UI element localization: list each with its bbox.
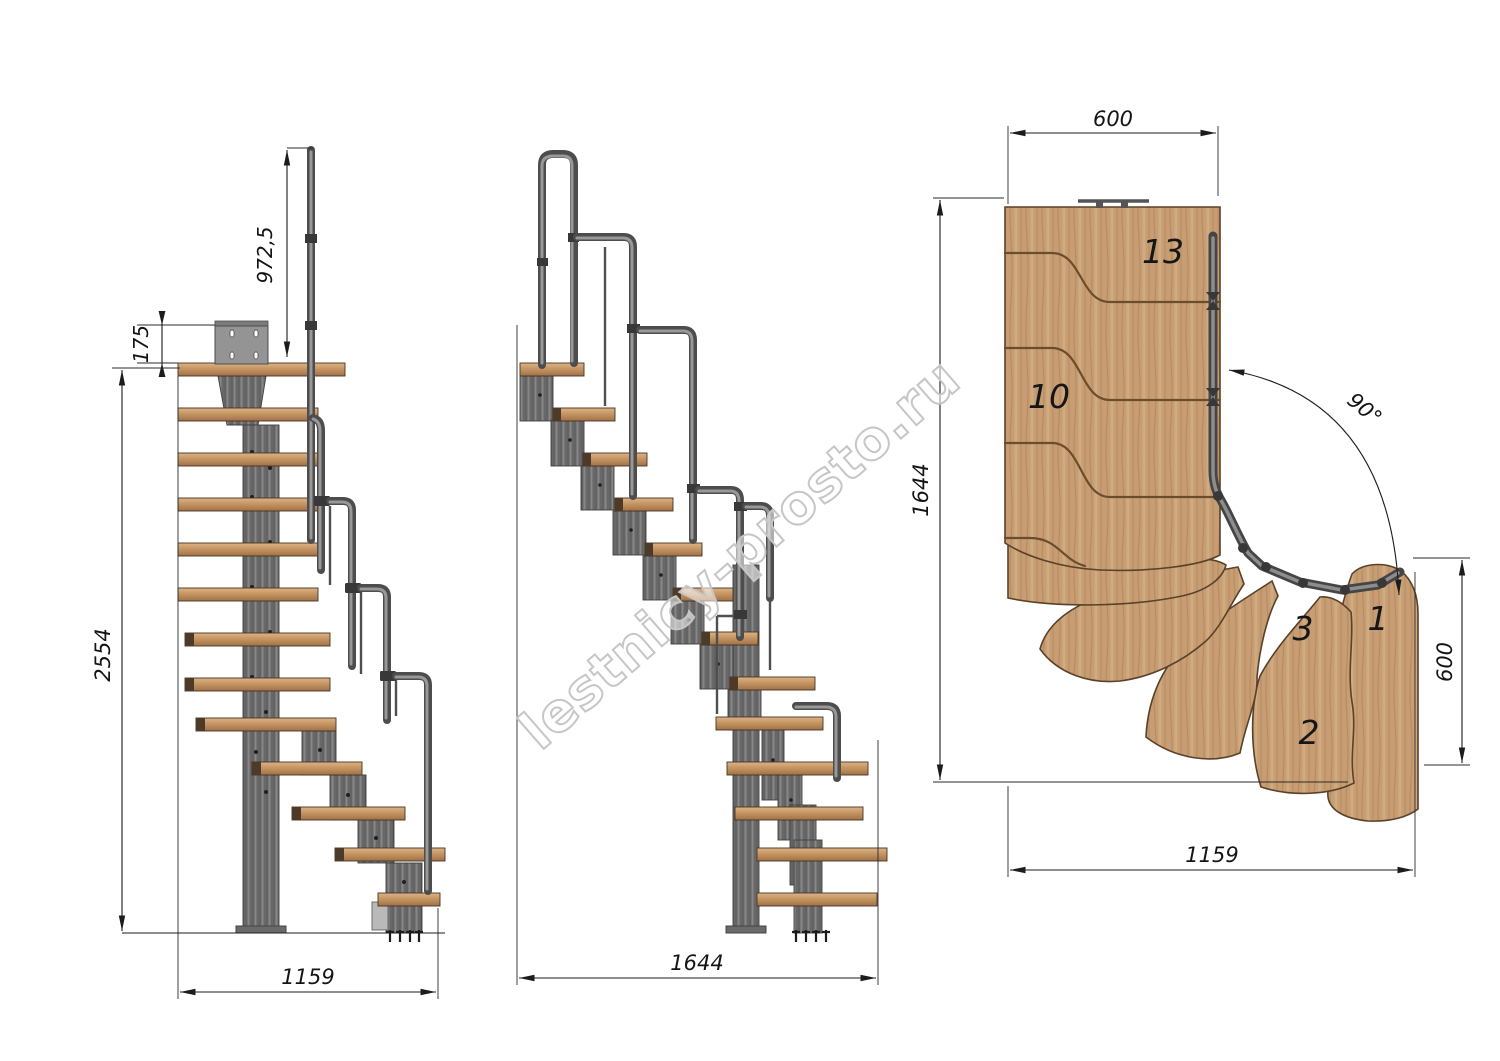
plan-view: 13 10 3 1 2 600 1644 90° — [909, 107, 1470, 877]
tread — [178, 543, 318, 556]
dim-total-length-label: 1159 — [1185, 843, 1238, 867]
dim-mount-plate-label: 175 — [129, 325, 153, 363]
side-dimensions: 1644 — [519, 740, 878, 985]
tread — [378, 893, 440, 906]
dim-flight-length-label: 1644 — [909, 463, 933, 516]
tread — [735, 807, 863, 820]
tread — [727, 762, 868, 775]
tread — [178, 588, 318, 601]
dim-exit-width-label: 600 — [1433, 642, 1457, 682]
tread — [583, 453, 647, 466]
step-10-label: 10 — [1028, 377, 1070, 416]
tread — [178, 363, 345, 376]
tread — [185, 633, 330, 646]
stair-technical-drawing: 972,5 175 2554 1159 — [0, 0, 1500, 1061]
step-2-label: 2 — [1299, 713, 1320, 752]
dim-handrail-height-label: 972,5 — [253, 226, 277, 283]
side-newel-column — [726, 565, 766, 933]
tread — [730, 677, 815, 690]
tread — [757, 848, 887, 861]
dim-footprint-width-label: 1159 — [281, 965, 334, 989]
front-elevation-view: 972,5 175 2554 1159 — [91, 148, 445, 999]
tread — [615, 498, 673, 511]
tread — [553, 408, 615, 421]
tread — [292, 807, 405, 820]
tread — [252, 762, 362, 775]
step-3-label: 3 — [1293, 609, 1314, 648]
step-13-label: 13 — [1142, 232, 1184, 271]
handrail-clamps — [1206, 292, 1387, 595]
front-handrail — [305, 150, 428, 891]
wall-mount-plate — [215, 321, 268, 364]
tread — [757, 893, 877, 906]
tread — [185, 678, 330, 691]
tread — [702, 632, 758, 645]
dim-footprint-length-label: 1644 — [670, 951, 723, 975]
dim-total-height-label: 2554 — [91, 628, 115, 681]
tread — [178, 453, 318, 466]
step-1-label: 1 — [1368, 599, 1389, 638]
dim-march-width-label: 600 — [1093, 107, 1133, 131]
tread — [178, 498, 318, 511]
tread — [178, 408, 318, 421]
tread — [196, 718, 336, 731]
tread — [716, 717, 823, 730]
